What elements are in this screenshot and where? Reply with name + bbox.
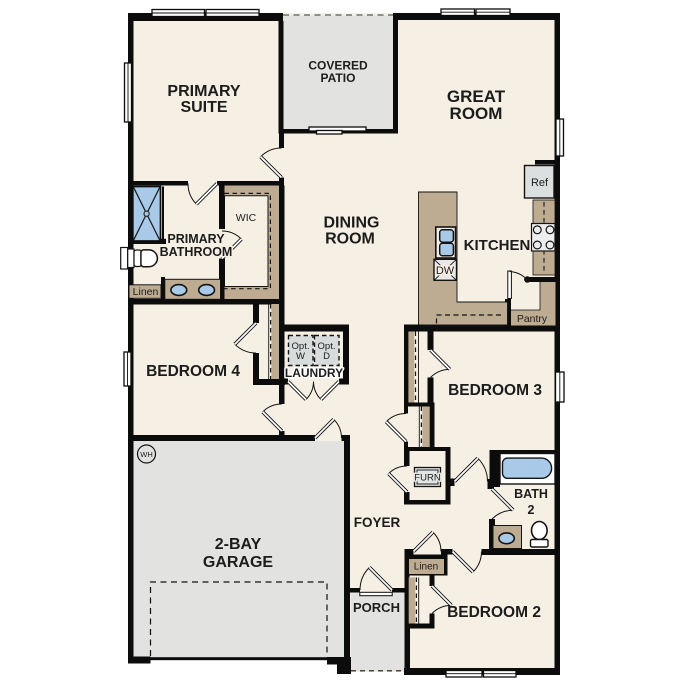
- svg-text:DW: DW: [436, 265, 455, 277]
- svg-text:Linen: Linen: [414, 562, 438, 573]
- svg-text:Ref: Ref: [531, 177, 549, 189]
- svg-text:BATHROOM: BATHROOM: [160, 245, 233, 259]
- svg-text:GARAGE: GARAGE: [203, 554, 274, 571]
- svg-text:Linen: Linen: [133, 286, 159, 298]
- svg-text:DINING: DINING: [324, 215, 380, 232]
- svg-text:BEDROOM 4: BEDROOM 4: [146, 363, 240, 380]
- svg-text:FURN: FURN: [414, 473, 441, 484]
- svg-text:FOYER: FOYER: [354, 515, 401, 530]
- svg-text:BATH: BATH: [514, 487, 548, 501]
- svg-text:BEDROOM 2: BEDROOM 2: [447, 604, 541, 621]
- svg-text:KITCHEN: KITCHEN: [464, 237, 531, 254]
- svg-text:PATIO: PATIO: [321, 71, 356, 85]
- svg-text:WH: WH: [140, 450, 153, 459]
- svg-text:PRIMARY: PRIMARY: [167, 83, 241, 100]
- svg-text:2: 2: [528, 503, 535, 517]
- svg-text:2-BAY: 2-BAY: [215, 536, 262, 553]
- svg-text:PRIMARY: PRIMARY: [167, 232, 225, 246]
- svg-text:LAUNDRY: LAUNDRY: [285, 366, 343, 380]
- svg-text:WIC: WIC: [236, 212, 257, 224]
- svg-text:D: D: [323, 351, 330, 362]
- svg-text:W: W: [296, 351, 305, 362]
- svg-text:ROOM: ROOM: [325, 231, 375, 248]
- svg-text:ROOM: ROOM: [450, 104, 503, 123]
- svg-text:Pantry: Pantry: [517, 313, 548, 325]
- svg-text:BEDROOM 3: BEDROOM 3: [448, 382, 542, 399]
- svg-text:SUITE: SUITE: [180, 99, 227, 116]
- svg-text:PORCH: PORCH: [353, 600, 400, 615]
